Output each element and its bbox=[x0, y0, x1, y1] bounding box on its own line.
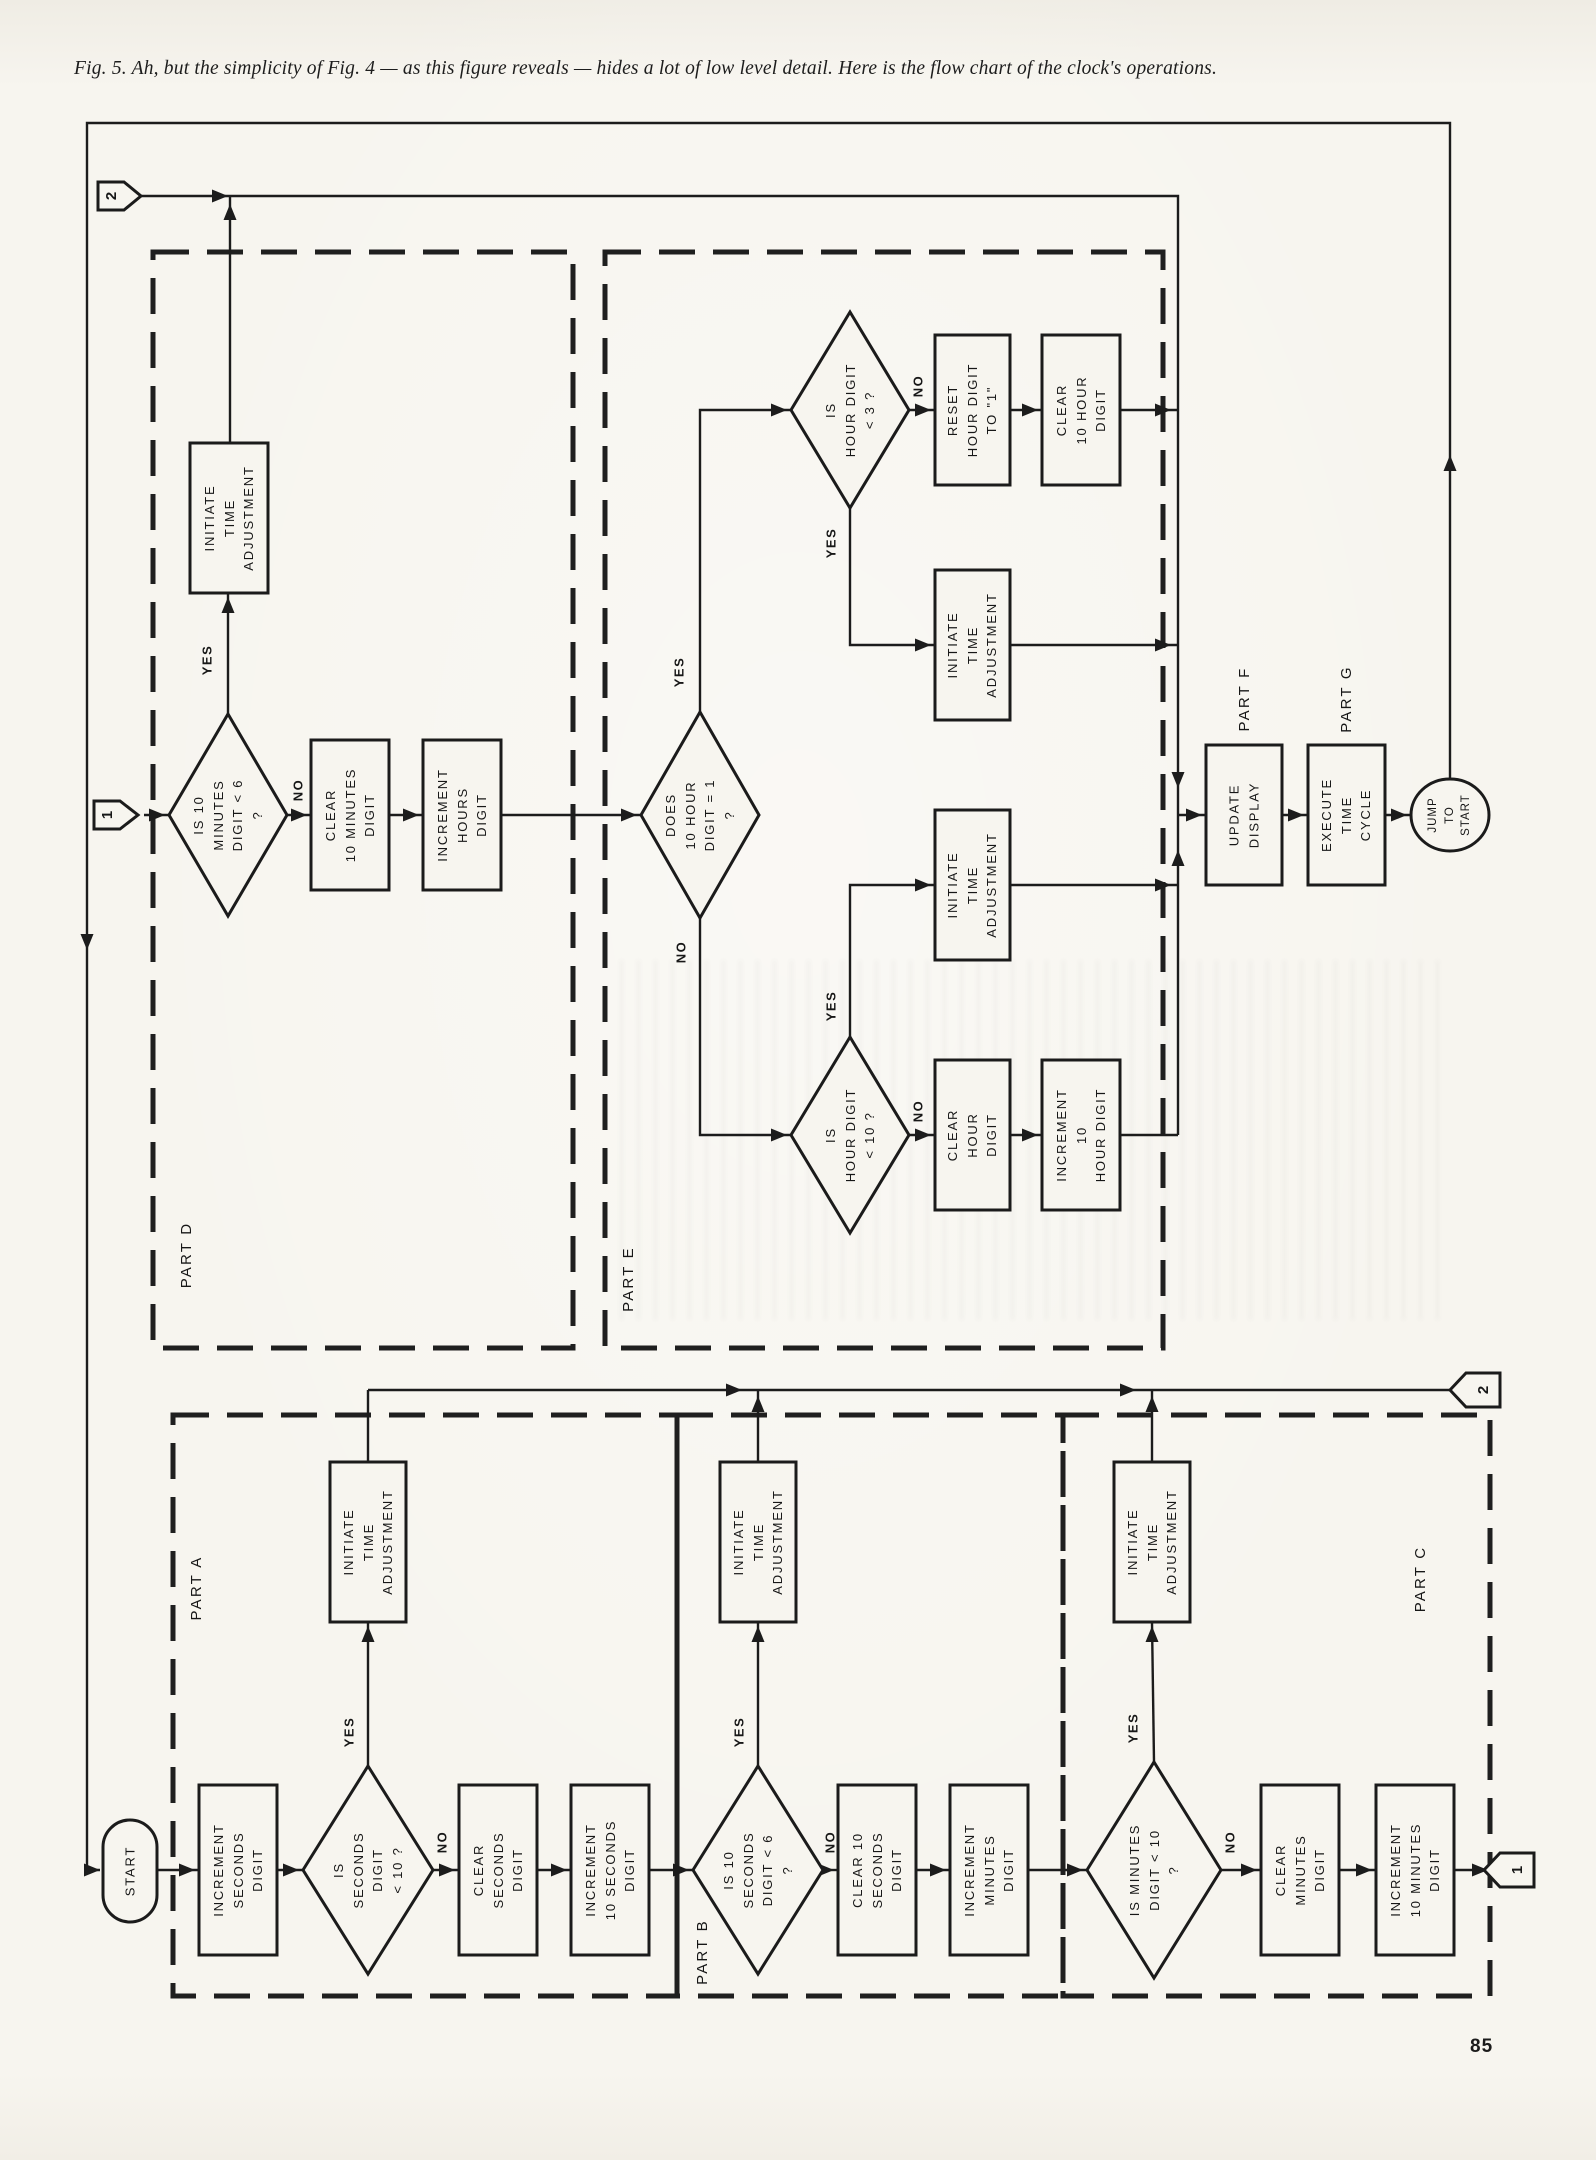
does-no-elbow bbox=[700, 918, 791, 1135]
connector-1-top-left-digit: 1 bbox=[97, 803, 120, 827]
initiate-c-label: INITIATE TIME ADJUSTMENT bbox=[1123, 1464, 1182, 1620]
d3-yes: YES bbox=[821, 518, 841, 568]
part-e-label: PART E bbox=[618, 1231, 641, 1327]
does-yes-elbow bbox=[700, 410, 791, 712]
increment-10-hour-label: INCREMENT 10 HOUR DIGIT bbox=[1052, 1061, 1111, 1209]
connector-2-bottom-right-digit: 2 bbox=[1473, 1378, 1496, 1402]
connector2-collector-line bbox=[141, 196, 1178, 1135]
connector-2-top-left-digit: 2 bbox=[101, 184, 124, 208]
d7-no: NO bbox=[1220, 1822, 1240, 1862]
initiate-e-lower-label: INITIATE TIME ADJUSTMENT bbox=[943, 811, 1002, 959]
part-f-label: PART F bbox=[1234, 651, 1257, 747]
increment-hours-label: INCREMENT HOURS DIGIT bbox=[433, 740, 492, 890]
initiate-b-label: INITIATE TIME ADJUSTMENT bbox=[729, 1464, 788, 1620]
d7-yes: YES bbox=[1123, 1703, 1143, 1753]
does-10-hour-eq-1-label: DOES 10 HOUR DIGIT = 1 ? bbox=[661, 713, 739, 917]
is-10-seconds-lt-6-label: IS 10 SECONDS DIGIT < 6 ? bbox=[719, 1768, 797, 1972]
d4-no: NO bbox=[908, 1091, 928, 1131]
part-c-label: PART C bbox=[1410, 1531, 1433, 1627]
clear-minutes-label: CLEAR MINUTES DIGIT bbox=[1271, 1787, 1330, 1953]
clear-seconds-label: CLEAR SECONDS DIGIT bbox=[469, 1787, 528, 1953]
is-minutes-lt-10-label: IS MINUTES DIGIT < 10 ? bbox=[1125, 1765, 1184, 1975]
page-number: 85 bbox=[1470, 2036, 1530, 2058]
clear-hour-label: CLEAR HOUR DIGIT bbox=[943, 1061, 1002, 1209]
clear-10-minutes-label: CLEAR 10 MINUTES DIGIT bbox=[321, 740, 380, 890]
initiate-d-label: INITIATE TIME ADJUSTMENT bbox=[200, 443, 259, 593]
update-display-label: UPDATE DISPLAY bbox=[1225, 747, 1264, 883]
clear-10-seconds-label: CLEAR 10 SECONDS DIGIT bbox=[848, 1787, 907, 1953]
connector-1-bottom-right-digit: 1 bbox=[1507, 1858, 1530, 1882]
jump-to-start-label: JUMP TO START bbox=[1425, 778, 1475, 852]
clear-10-hour-label: CLEAR 10 HOUR DIGIT bbox=[1052, 336, 1111, 484]
d3-yes-elbow bbox=[850, 508, 935, 645]
d1-no: NO bbox=[288, 770, 308, 810]
magazine-page: Fig. 5. Ah, but the simplicity of Fig. 4… bbox=[0, 0, 1596, 2160]
d5-no: NO bbox=[432, 1822, 452, 1862]
part-d-label: PART D bbox=[176, 1207, 199, 1303]
increment-10-seconds-label: INCREMENT 10 SECONDS DIGIT bbox=[581, 1787, 640, 1953]
reset-hour-label: RESET HOUR DIGIT TO "1" bbox=[943, 336, 1002, 484]
increment-10-minutes-label: INCREMENT 10 MINUTES DIGIT bbox=[1386, 1787, 1445, 1953]
d6-no: NO bbox=[820, 1822, 840, 1862]
execute-time-cycle-label: EXECUTE TIME CYCLE bbox=[1317, 747, 1376, 883]
part-b-label: PART B bbox=[692, 1904, 715, 2000]
initiate-e-upper-label: INITIATE TIME ADJUSTMENT bbox=[943, 571, 1002, 719]
part-g-label: PART G bbox=[1336, 651, 1359, 747]
part-a-label: PART A bbox=[186, 1540, 209, 1636]
d7-yes-riser bbox=[1152, 1622, 1154, 1762]
d5-yes: YES bbox=[339, 1707, 359, 1757]
increment-seconds-label: INCREMENT SECONDS DIGIT bbox=[209, 1787, 268, 1953]
increment-minutes-label: INCREMENT MINUTES DIGIT bbox=[960, 1787, 1019, 1953]
d2-no: NO bbox=[671, 932, 691, 972]
d4-yes: YES bbox=[821, 981, 841, 1031]
is-10-minutes-lt-6-label: IS 10 MINUTES DIGIT < 6 ? bbox=[189, 715, 267, 915]
is-hour-lt-10-label: IS HOUR DIGIT < 10 ? bbox=[821, 1039, 880, 1231]
d4-yes-elbow bbox=[850, 885, 935, 1037]
d6-yes: YES bbox=[729, 1707, 749, 1757]
start-label: START bbox=[120, 1822, 140, 1920]
initiate-a-label: INITIATE TIME ADJUSTMENT bbox=[339, 1464, 398, 1620]
is-hour-lt-3-label: IS HOUR DIGIT < 3 ? bbox=[821, 314, 880, 506]
d3-no: NO bbox=[908, 366, 928, 406]
is-seconds-lt-10-label: IS SECONDS DIGIT < 10 ? bbox=[329, 1768, 407, 1972]
d1-yes: YES bbox=[197, 635, 217, 685]
d2-yes: YES bbox=[669, 647, 689, 697]
